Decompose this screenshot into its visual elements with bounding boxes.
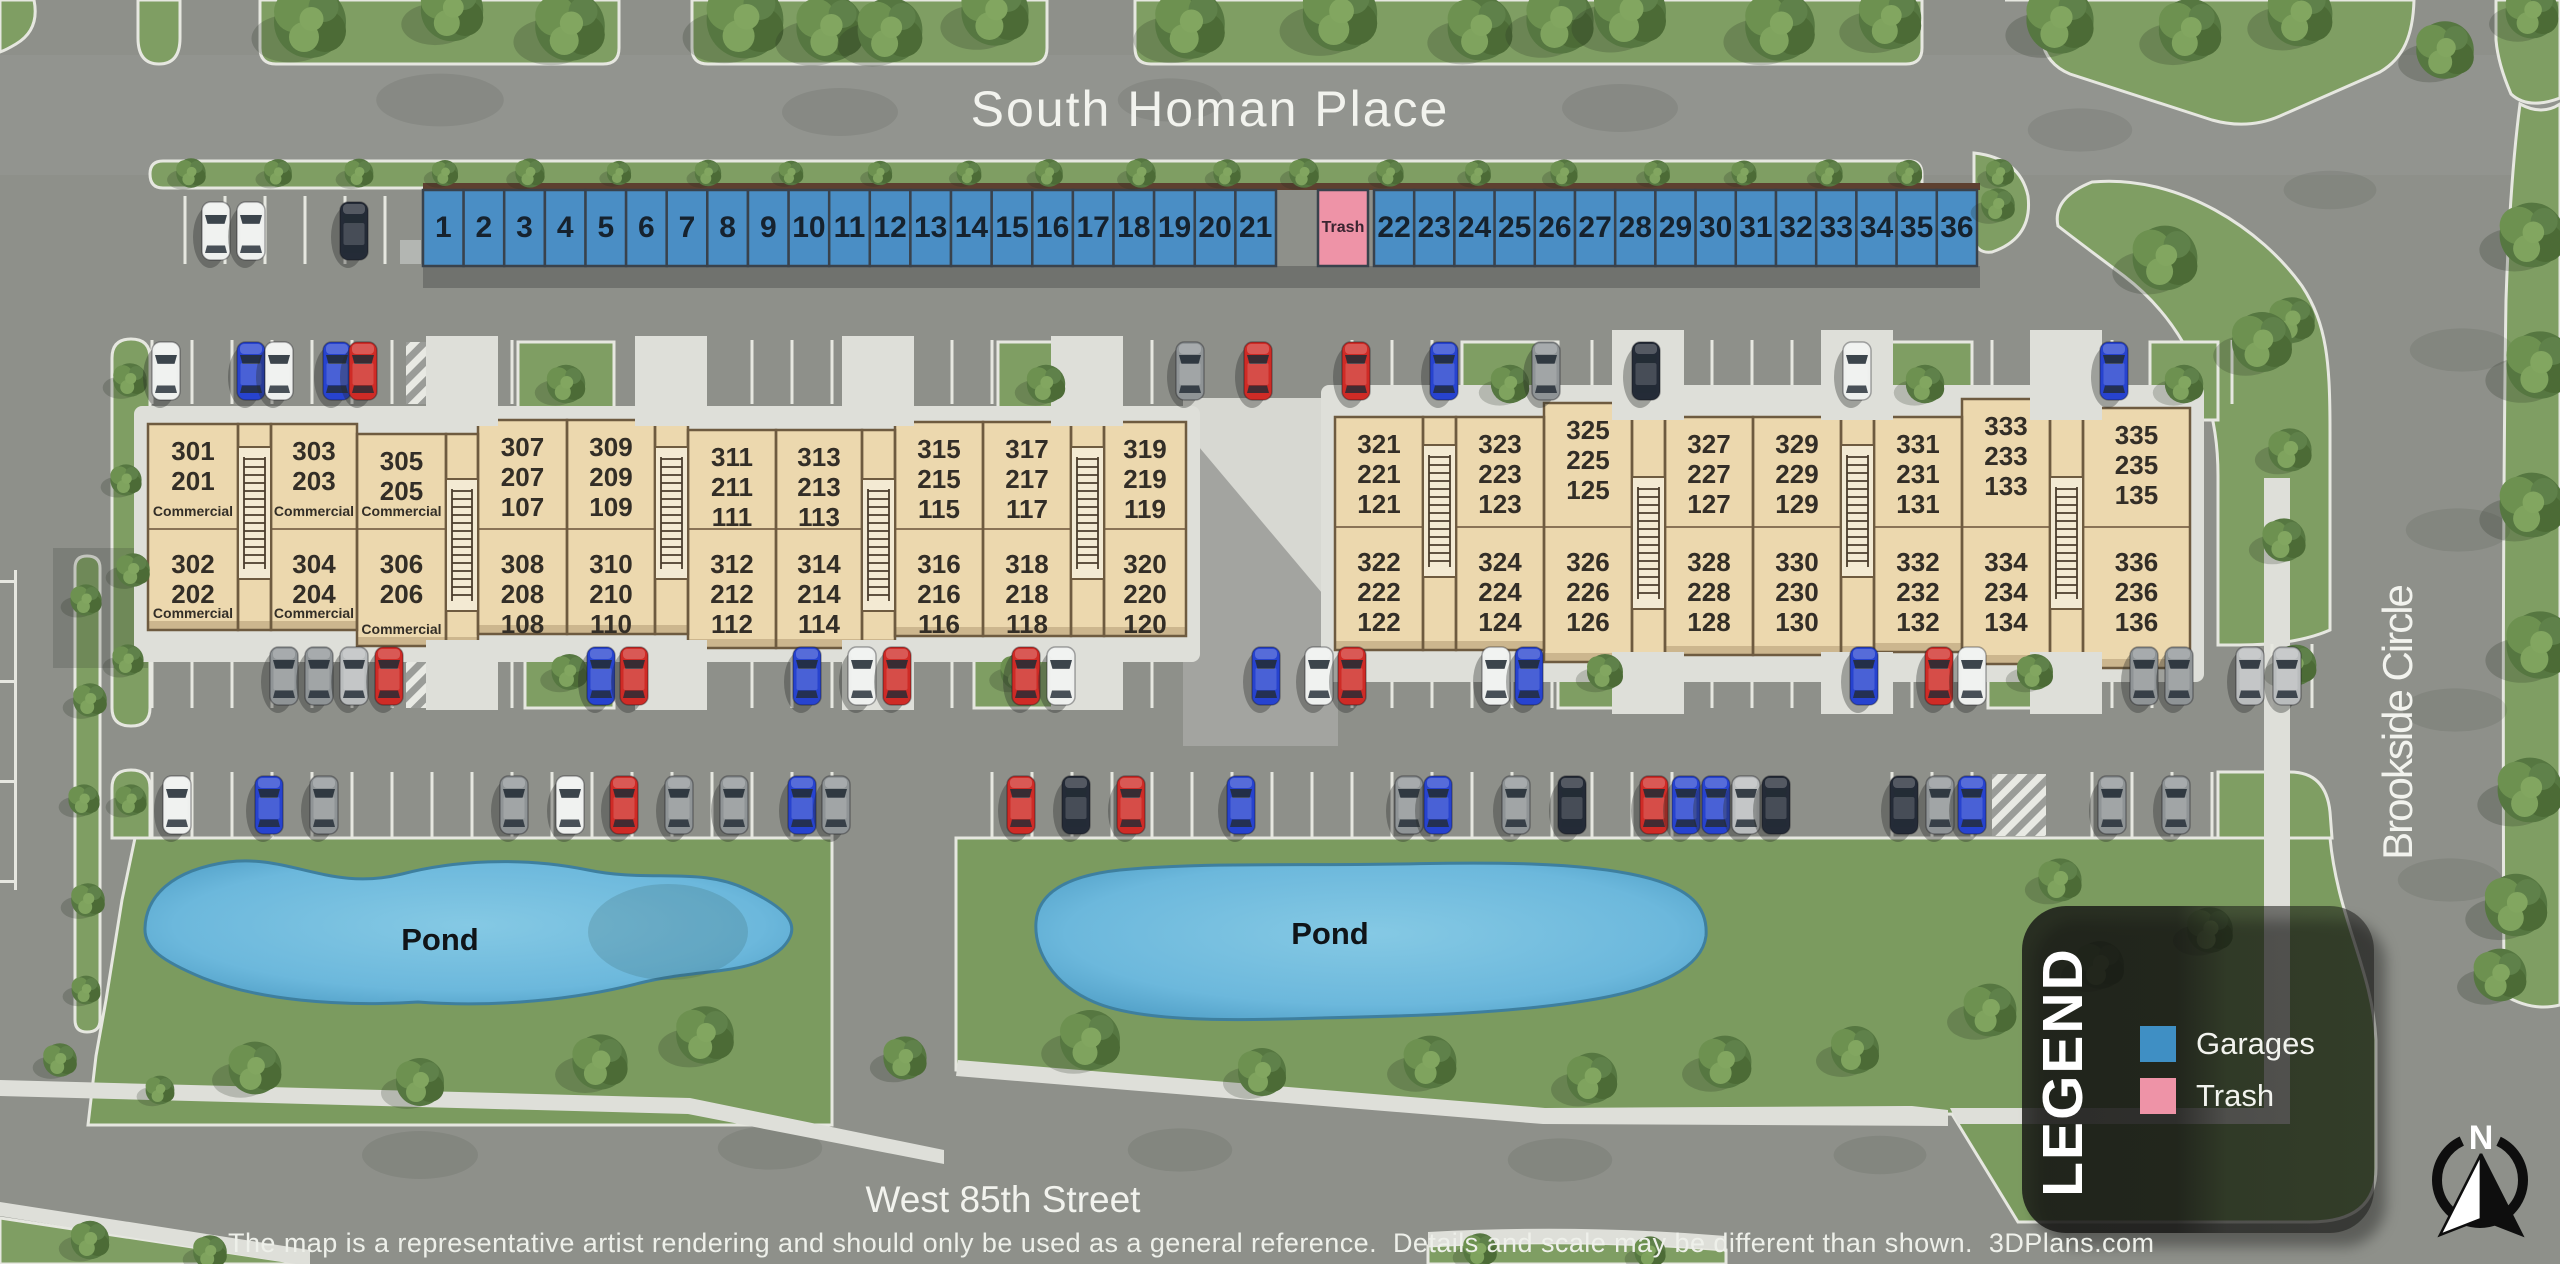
svg-text:309: 309 — [589, 432, 632, 462]
svg-text:Commercial: Commercial — [361, 503, 441, 519]
svg-text:16: 16 — [1036, 211, 1069, 244]
svg-text:111: 111 — [712, 502, 753, 532]
svg-text:329: 329 — [1775, 429, 1818, 459]
svg-text:1: 1 — [435, 211, 452, 244]
svg-text:113: 113 — [798, 502, 840, 532]
svg-text:333: 333 — [1984, 411, 2027, 441]
svg-text:206: 206 — [380, 579, 423, 609]
svg-text:304: 304 — [292, 549, 336, 579]
svg-text:136: 136 — [2115, 607, 2158, 637]
svg-text:West 85th Street: West 85th Street — [866, 1179, 1142, 1220]
svg-text:227: 227 — [1687, 459, 1730, 489]
svg-text:312: 312 — [710, 549, 753, 579]
svg-text:23: 23 — [1418, 211, 1451, 244]
svg-text:316: 316 — [917, 549, 960, 579]
svg-text:228: 228 — [1687, 577, 1730, 607]
svg-text:121: 121 — [1357, 489, 1400, 519]
svg-text:224: 224 — [1478, 577, 1522, 607]
svg-text:222: 222 — [1357, 577, 1400, 607]
svg-text:35: 35 — [1900, 211, 1933, 244]
svg-text:315: 315 — [917, 434, 960, 464]
svg-text:21: 21 — [1239, 211, 1272, 244]
svg-text:322: 322 — [1357, 547, 1400, 577]
svg-text:22: 22 — [1377, 211, 1410, 244]
svg-text:20: 20 — [1198, 211, 1231, 244]
svg-text:116: 116 — [918, 609, 960, 639]
svg-text:321: 321 — [1357, 429, 1400, 459]
svg-text:306: 306 — [380, 549, 423, 579]
svg-text:236: 236 — [2115, 577, 2158, 607]
svg-text:232: 232 — [1896, 577, 1939, 607]
svg-text:18: 18 — [1117, 211, 1150, 244]
svg-text:302: 302 — [171, 549, 214, 579]
svg-text:128: 128 — [1687, 607, 1730, 637]
svg-text:118: 118 — [1006, 609, 1048, 639]
svg-text:308: 308 — [501, 549, 544, 579]
svg-text:134: 134 — [1984, 607, 2028, 637]
svg-text:30: 30 — [1699, 211, 1732, 244]
svg-text:8: 8 — [719, 211, 736, 244]
svg-text:108: 108 — [501, 609, 544, 639]
svg-text:218: 218 — [1005, 579, 1048, 609]
svg-text:3: 3 — [516, 211, 533, 244]
svg-text:208: 208 — [501, 579, 544, 609]
svg-text:109: 109 — [589, 492, 632, 522]
svg-text:33: 33 — [1820, 211, 1853, 244]
svg-text:131: 131 — [1896, 489, 1939, 519]
svg-text:Trash: Trash — [2196, 1078, 2274, 1113]
svg-text:225: 225 — [1566, 445, 1609, 475]
svg-text:335: 335 — [2115, 420, 2158, 450]
svg-text:327: 327 — [1687, 429, 1730, 459]
svg-text:210: 210 — [589, 579, 632, 609]
svg-text:330: 330 — [1775, 547, 1818, 577]
svg-text:223: 223 — [1478, 459, 1521, 489]
svg-text:34: 34 — [1860, 211, 1894, 244]
svg-text:328: 328 — [1687, 547, 1730, 577]
svg-text:311: 311 — [711, 442, 753, 472]
svg-text:114: 114 — [798, 609, 840, 639]
svg-text:Garages: Garages — [2196, 1026, 2315, 1061]
svg-text:120: 120 — [1123, 609, 1166, 639]
svg-text:Commercial: Commercial — [153, 605, 233, 621]
svg-text:126: 126 — [1566, 607, 1609, 637]
svg-text:125: 125 — [1566, 475, 1609, 505]
svg-text:115: 115 — [918, 494, 960, 524]
svg-text:216: 216 — [917, 579, 960, 609]
svg-text:24: 24 — [1458, 211, 1492, 244]
svg-text:213: 213 — [797, 472, 840, 502]
svg-text:13: 13 — [914, 211, 947, 244]
svg-text:313: 313 — [797, 442, 840, 472]
svg-text:19: 19 — [1158, 211, 1191, 244]
svg-text:6: 6 — [638, 211, 655, 244]
svg-text:201: 201 — [171, 466, 214, 496]
svg-text:229: 229 — [1775, 459, 1818, 489]
svg-text:9: 9 — [760, 211, 777, 244]
svg-text:307: 307 — [501, 432, 544, 462]
svg-text:314: 314 — [797, 549, 841, 579]
svg-text:217: 217 — [1005, 464, 1048, 494]
svg-text:133: 133 — [1984, 471, 2027, 501]
svg-text:14: 14 — [955, 211, 989, 244]
svg-text:129: 129 — [1775, 489, 1818, 519]
svg-text:Commercial: Commercial — [274, 503, 354, 519]
svg-text:110: 110 — [590, 609, 632, 639]
svg-text:10: 10 — [792, 211, 825, 244]
svg-text:27: 27 — [1578, 211, 1611, 244]
svg-text:215: 215 — [917, 464, 960, 494]
svg-text:214: 214 — [797, 579, 841, 609]
svg-text:36: 36 — [1940, 211, 1973, 244]
svg-text:234: 234 — [1984, 577, 2028, 607]
svg-text:324: 324 — [1478, 547, 1522, 577]
svg-text:Commercial: Commercial — [274, 605, 354, 621]
svg-text:124: 124 — [1478, 607, 1522, 637]
svg-text:317: 317 — [1005, 434, 1048, 464]
svg-text:303: 303 — [292, 436, 335, 466]
svg-text:Brookside Circle: Brookside Circle — [2374, 585, 2421, 859]
svg-text:209: 209 — [589, 462, 632, 492]
svg-text:2: 2 — [476, 211, 493, 244]
svg-text:29: 29 — [1659, 211, 1692, 244]
svg-text:305: 305 — [380, 446, 423, 476]
svg-text:318: 318 — [1005, 549, 1048, 579]
svg-text:17: 17 — [1077, 211, 1110, 244]
svg-text:32: 32 — [1779, 211, 1812, 244]
svg-text:336: 336 — [2115, 547, 2158, 577]
svg-text:12: 12 — [873, 211, 906, 244]
svg-text:320: 320 — [1123, 549, 1166, 579]
svg-text:319: 319 — [1123, 434, 1166, 464]
svg-text:112: 112 — [711, 609, 753, 639]
svg-text:South Homan Place: South Homan Place — [971, 81, 1450, 137]
svg-text:The map is a representative ar: The map is a representative artist rende… — [228, 1228, 2154, 1258]
svg-text:231: 231 — [1896, 459, 1939, 489]
svg-text:221: 221 — [1357, 459, 1400, 489]
svg-text:301: 301 — [171, 436, 214, 466]
svg-text:7: 7 — [679, 211, 696, 244]
svg-text:233: 233 — [1984, 441, 2027, 471]
svg-text:Trash: Trash — [1322, 219, 1365, 236]
svg-text:325: 325 — [1566, 415, 1609, 445]
svg-text:135: 135 — [2115, 480, 2158, 510]
svg-text:107: 107 — [501, 492, 544, 522]
svg-text:4: 4 — [557, 211, 574, 244]
svg-text:26: 26 — [1538, 211, 1571, 244]
svg-text:Pond: Pond — [1291, 916, 1369, 951]
svg-text:N: N — [2469, 1119, 2494, 1157]
svg-text:132: 132 — [1896, 607, 1939, 637]
svg-text:11: 11 — [834, 211, 866, 244]
svg-text:25: 25 — [1498, 211, 1531, 244]
svg-text:205: 205 — [380, 476, 423, 506]
svg-text:331: 331 — [1896, 429, 1939, 459]
svg-text:332: 332 — [1896, 547, 1939, 577]
svg-text:203: 203 — [292, 466, 335, 496]
svg-text:123: 123 — [1478, 489, 1521, 519]
svg-text:219: 219 — [1123, 464, 1166, 494]
svg-text:28: 28 — [1619, 211, 1652, 244]
svg-text:130: 130 — [1775, 607, 1818, 637]
svg-text:5: 5 — [597, 211, 614, 244]
svg-text:122: 122 — [1357, 607, 1400, 637]
svg-text:117: 117 — [1006, 494, 1048, 524]
svg-text:LEGEND: LEGEND — [2031, 947, 2095, 1197]
svg-text:127: 127 — [1687, 489, 1730, 519]
svg-text:Commercial: Commercial — [153, 503, 233, 519]
svg-text:211: 211 — [711, 472, 753, 502]
svg-text:Commercial: Commercial — [361, 621, 441, 637]
svg-text:31: 31 — [1739, 211, 1772, 244]
svg-text:Pond: Pond — [401, 922, 479, 957]
svg-text:326: 326 — [1566, 547, 1609, 577]
svg-text:310: 310 — [589, 549, 632, 579]
svg-text:226: 226 — [1566, 577, 1609, 607]
svg-text:220: 220 — [1123, 579, 1166, 609]
svg-text:207: 207 — [501, 462, 544, 492]
svg-text:230: 230 — [1775, 577, 1818, 607]
svg-text:212: 212 — [710, 579, 753, 609]
svg-text:15: 15 — [995, 211, 1028, 244]
svg-text:334: 334 — [1984, 547, 2028, 577]
svg-text:323: 323 — [1478, 429, 1521, 459]
svg-text:119: 119 — [1124, 494, 1166, 524]
svg-text:235: 235 — [2115, 450, 2158, 480]
